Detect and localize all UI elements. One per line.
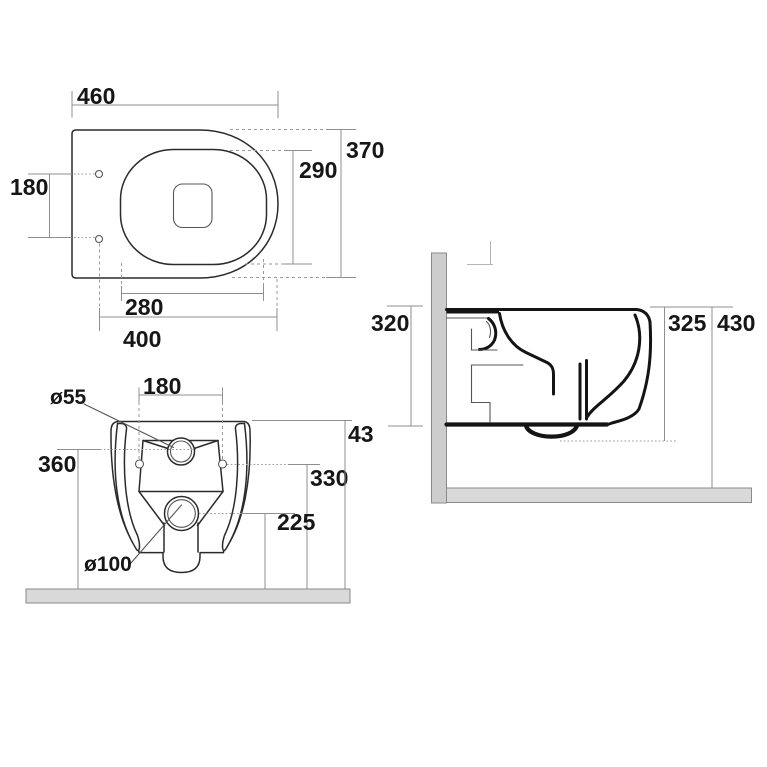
plan-fixing-hole-top: [96, 171, 103, 178]
dim-label-330: 330: [310, 465, 348, 491]
dim-label-180: 180: [10, 174, 48, 200]
dim-overall-depth: 370: [230, 130, 384, 278]
dim-label-400: 400: [123, 326, 161, 352]
plan-body-outline: [72, 130, 278, 278]
floor-slab: [26, 589, 350, 603]
dim-label-flush-diameter: ø55: [50, 386, 87, 409]
technical-drawing-page: 460 370 290 180: [0, 0, 767, 767]
dim-body-height: 325: [560, 307, 707, 441]
floor-slab-side: [447, 488, 752, 503]
front-fixing-hole-left: [136, 460, 144, 468]
dim-bowl-opening-depth: 290: [230, 151, 337, 265]
flush-inlet-outer: [168, 438, 195, 465]
plan-sump-outline: [174, 184, 213, 228]
dim-label-430-truncated: 43: [348, 421, 374, 447]
dim-bowl-opening-width: 280: [122, 259, 264, 320]
dim-depth-at-wall: 320: [371, 306, 423, 426]
internal-step: [472, 365, 524, 423]
dim-label-290: 290: [299, 157, 337, 183]
dim-rim-height: 430: [712, 307, 755, 488]
dim-fixing-holes-spacing-plan: 180: [10, 174, 95, 238]
plan-fixing-hole-bottom: [96, 236, 103, 243]
side-inner-bowl-curve: [588, 315, 640, 417]
dim-label-430: 430: [717, 310, 755, 336]
dim-label-460: 460: [77, 83, 115, 109]
wall-slab: [432, 253, 447, 503]
front-view: ø55 ø100 180 360 330: [26, 373, 374, 603]
side-view: 320 325 430: [371, 241, 755, 503]
dim-label-325: 325: [668, 310, 707, 336]
outlet-outer: [165, 497, 199, 531]
plan-bowl-opening: [121, 150, 267, 265]
plan-view: 460 370 290 180: [10, 83, 384, 352]
dim-label-outlet-diameter: ø100: [84, 553, 132, 576]
dim-label-180-front: 180: [143, 373, 181, 399]
toilet-dimension-drawing: 460 370 290 180: [0, 0, 767, 767]
dim-overall-height-front: 43: [252, 421, 374, 589]
dim-label-370: 370: [346, 137, 384, 163]
front-fixing-hole-right: [219, 460, 227, 468]
dim-label-320: 320: [371, 310, 409, 336]
dim-label-225: 225: [277, 509, 316, 535]
dim-overall-width: 460: [72, 83, 278, 118]
dim-label-360: 360: [38, 451, 76, 477]
spout-diagonal: [500, 314, 554, 395]
rim-lip-inner: [487, 322, 491, 338]
dim-label-280: 280: [125, 294, 163, 320]
